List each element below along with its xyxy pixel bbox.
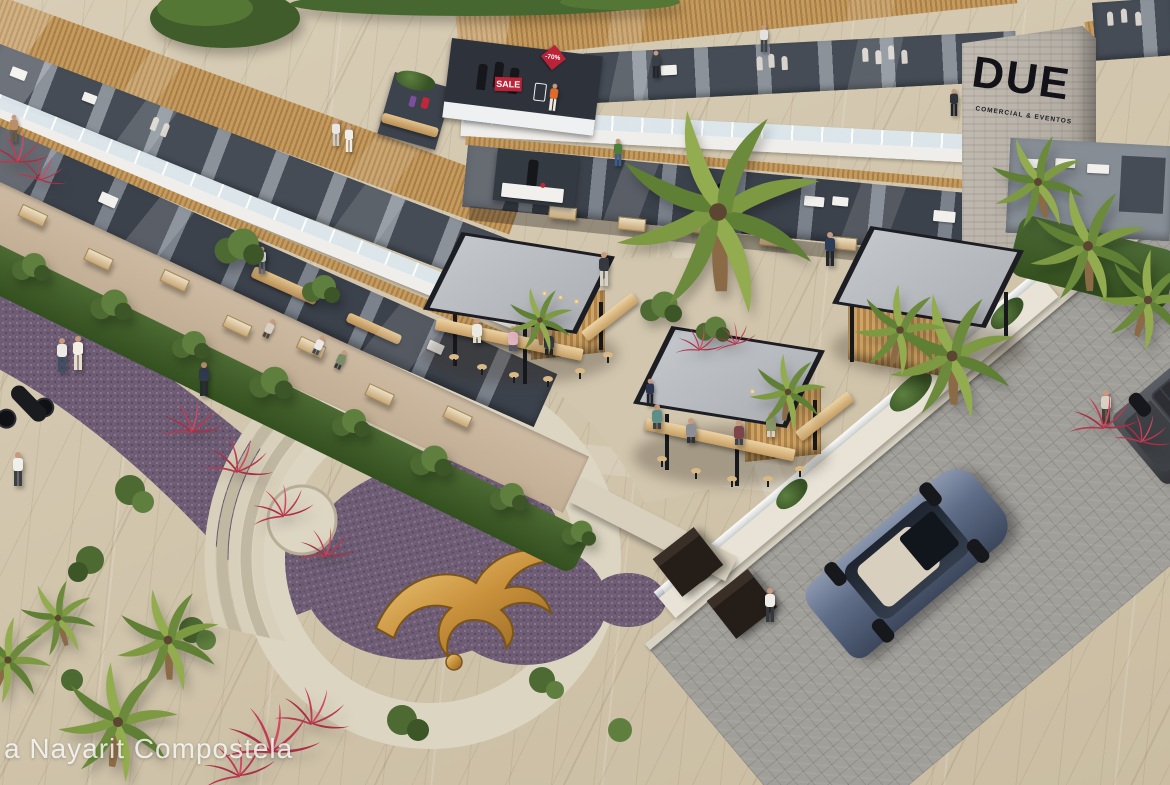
red-cordyline-plants [0,130,1170,785]
hedge-bushes [12,229,730,546]
watermark: a Nayarit Compostela [4,733,293,765]
palm-trees [0,111,1170,785]
rooftop-greenery [150,0,680,48]
vegetation-overlay [0,0,1170,785]
architectural-render-plaza-scene: SALE -70% DUE COMERCIAL & EVENTOS [0,0,1170,785]
